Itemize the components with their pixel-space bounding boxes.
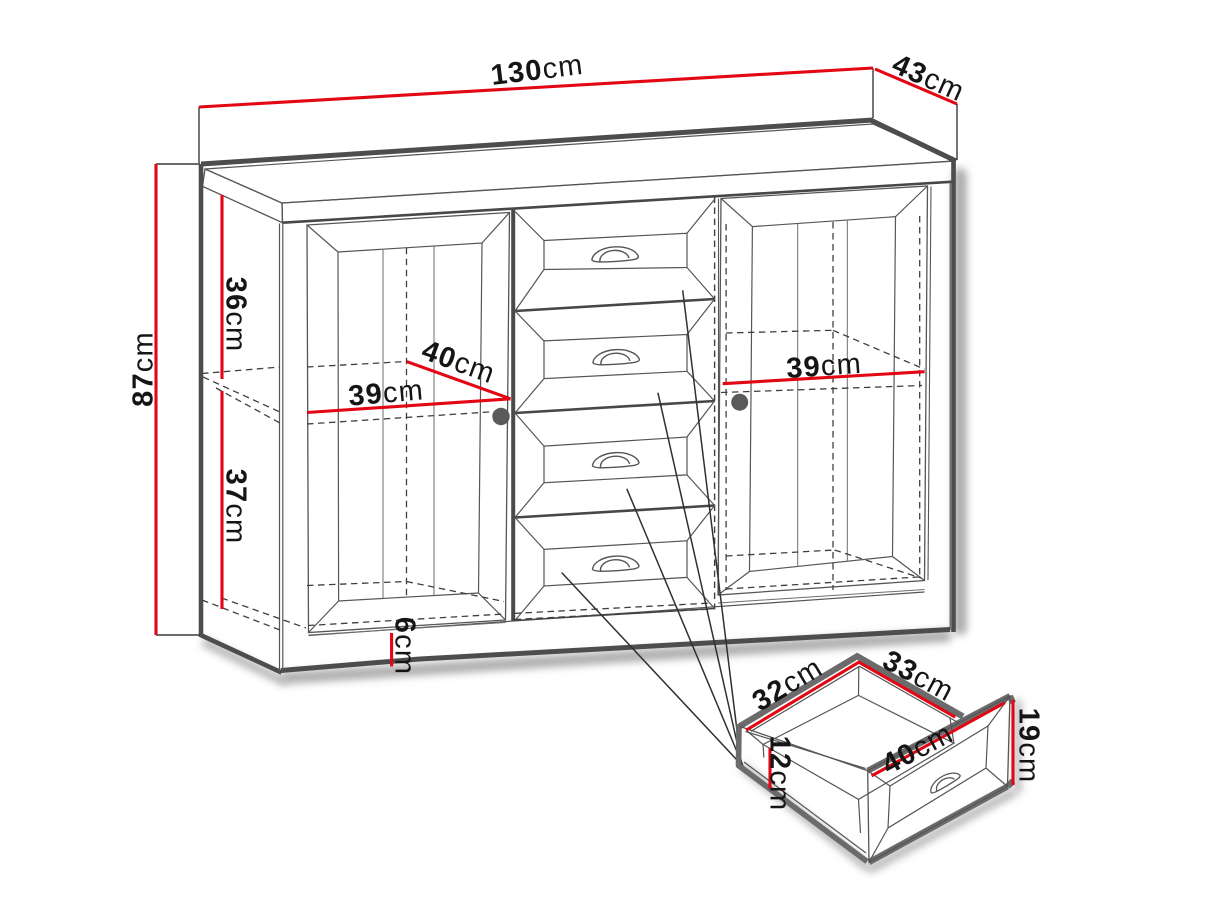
svg-text:37cm: 37cm — [220, 469, 252, 545]
svg-text:39cm: 39cm — [785, 348, 863, 385]
svg-text:36cm: 36cm — [220, 277, 252, 353]
svg-text:87cm: 87cm — [127, 331, 159, 407]
svg-text:19cm: 19cm — [1013, 708, 1045, 784]
svg-text:6cm: 6cm — [389, 617, 421, 675]
svg-text:39cm: 39cm — [347, 374, 425, 412]
svg-text:12cm: 12cm — [764, 736, 796, 812]
